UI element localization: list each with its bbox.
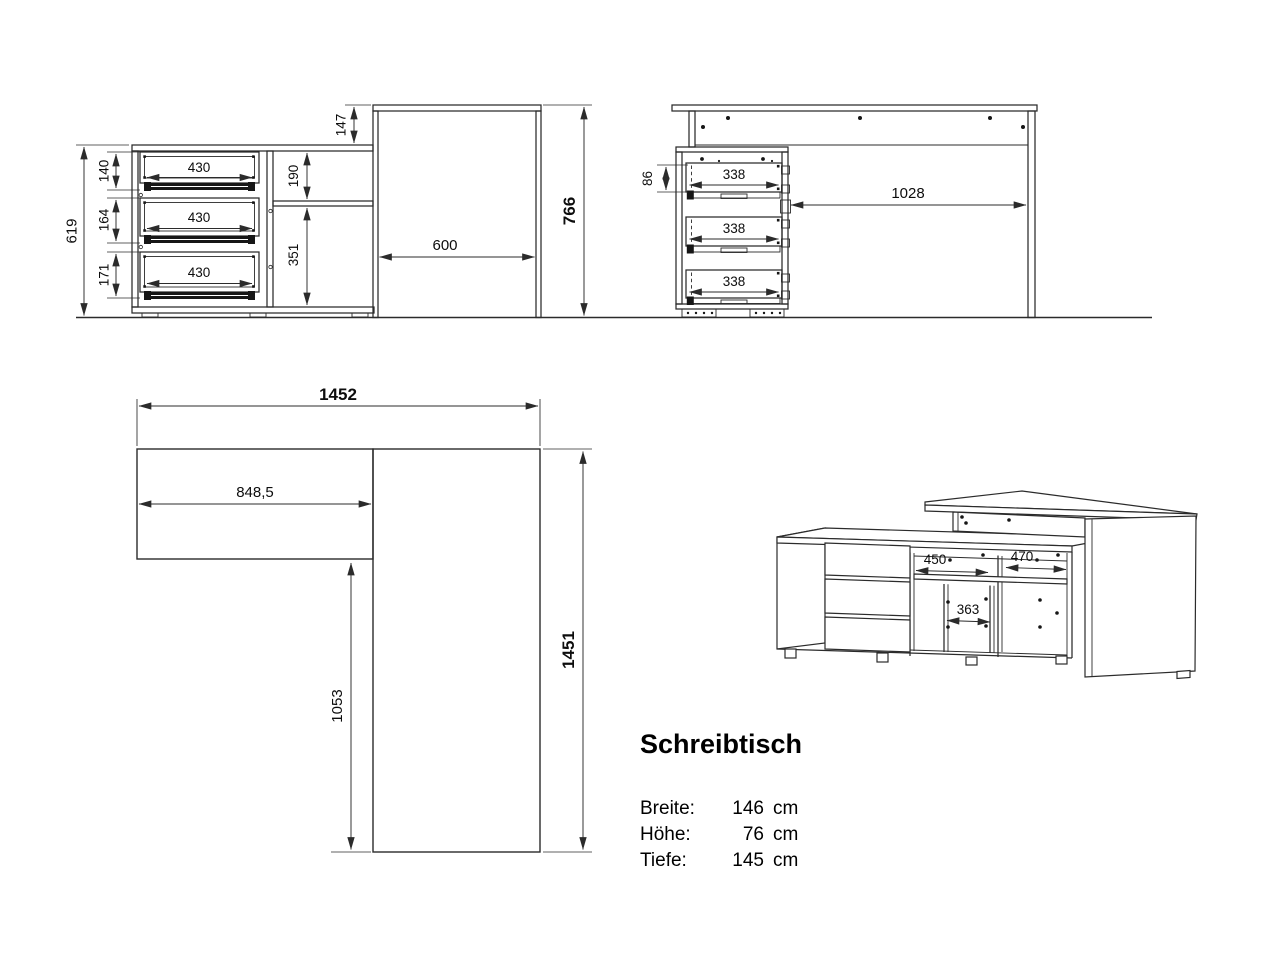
spec-label: Tiefe: [640, 848, 718, 874]
dim-label-848-5: 848,5 [236, 484, 274, 501]
dim-label-766: 766 [560, 197, 579, 225]
spec-label: Höhe: [640, 822, 718, 848]
spec-label: Breite: [640, 796, 718, 822]
dim-label-338-1: 338 [723, 167, 746, 182]
desk-top-side [672, 105, 1037, 111]
dim-label-338-2: 338 [723, 221, 746, 236]
front-view-dimensions: 619 140 164 171 147 190 351 766 [64, 105, 593, 316]
dim-label-338-3: 338 [723, 274, 746, 289]
view-side-elevation: 338 338 338 [640, 105, 1037, 318]
dim-label-619: 619 [64, 218, 81, 243]
drawer-3d-3 [825, 617, 910, 652]
drawer-front-1: 430 [140, 152, 259, 191]
spec-unit: cm [773, 824, 798, 845]
dim-label-1451: 1451 [559, 631, 578, 669]
dim-line-450 [916, 571, 988, 573]
dim-label-171: 171 [97, 264, 112, 287]
dim-label-1053: 1053 [329, 689, 346, 722]
shelf-3d [914, 574, 1067, 584]
spec-value: 145 [718, 848, 764, 874]
spec-unit: cm [773, 798, 798, 819]
screw-dots [946, 553, 1060, 629]
dim-label-363: 363 [957, 602, 980, 617]
spec-row-breite: Breite:146cm [640, 796, 802, 822]
spec-value: 146 [718, 796, 764, 822]
drawer-box-3: 338 [686, 270, 782, 305]
dim-label-351: 351 [286, 244, 301, 267]
dim-line-363 [947, 621, 990, 623]
desk-panel-right-edge [536, 111, 541, 318]
product-info-block: Schreibtisch Breite:146cm Höhe:76cm Tief… [640, 729, 802, 874]
dim-label-430-1: 430 [188, 160, 211, 175]
drawer-3d-1 [825, 543, 910, 578]
dim-label-450: 450 [924, 552, 947, 567]
desk-side-panel-3d [1085, 516, 1196, 677]
dim-label-140: 140 [97, 160, 112, 183]
technical-drawing-sheet: 600 430 [0, 0, 1271, 953]
view-front-elevation: 600 430 [64, 105, 593, 318]
spec-value: 76 [718, 822, 764, 848]
drawer-front-2: 430 [140, 198, 259, 244]
dim-label-600: 600 [432, 237, 457, 254]
dim-line-470 [1006, 568, 1066, 570]
view-plan: 1452 848,5 1053 1451 [137, 385, 592, 852]
view-perspective: 450 470 363 [777, 491, 1197, 679]
sideboard-left-side [777, 528, 825, 649]
spec-row-hoehe: Höhe:76cm [640, 822, 802, 848]
dim-label-430-2: 430 [188, 210, 211, 225]
spec-unit: cm [773, 850, 798, 871]
dim-label-1452: 1452 [319, 385, 357, 404]
dim-label-1028: 1028 [891, 185, 924, 202]
dim-label-164: 164 [97, 208, 112, 231]
drawer-front-3: 430 [140, 252, 259, 300]
desk-panel-side [1028, 111, 1035, 318]
dim-label-147: 147 [334, 114, 349, 137]
spec-row-tiefe: Tiefe:145cm [640, 848, 802, 874]
desk-top-panel [373, 105, 541, 111]
plan-return-top [373, 449, 540, 852]
drawer-3d-2 [825, 579, 910, 616]
drawer-box-1: 338 [686, 163, 782, 200]
drawer-box-2: 338 [686, 217, 782, 254]
dim-label-190: 190 [286, 165, 301, 188]
desk-panel-left-edge [373, 111, 378, 318]
dim-label-430-3: 430 [188, 265, 211, 280]
product-title: Schreibtisch [640, 729, 802, 760]
drawing-canvas: 600 430 [0, 0, 1271, 953]
dim-label-470: 470 [1011, 549, 1034, 564]
dim-label-86: 86 [640, 171, 655, 186]
